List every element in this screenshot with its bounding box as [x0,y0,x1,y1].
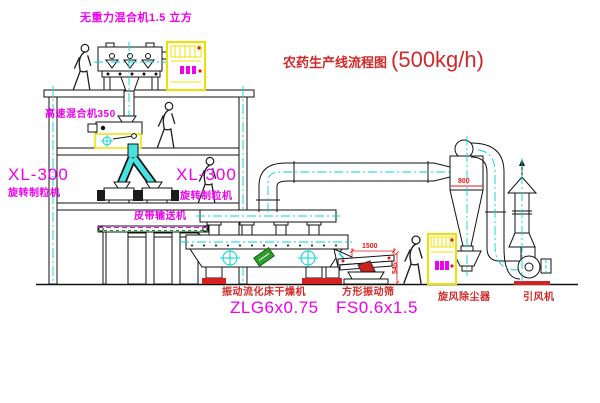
title-text: 农药生产线流程图 [283,52,387,71]
page-title: 农药生产线流程图 (500kg/h) [283,47,484,73]
label-dryer-model: ZLG6x0.75 [230,299,319,316]
dimension-cyclone-inlet: 800 [458,178,470,185]
label-granulator-left-model: XL-300 [8,166,69,183]
label-belt-conveyor: 皮带输送机 [134,212,187,222]
label-dryer-name: 振动流化床干燥机 [222,288,306,298]
label-granulator-left-name: 旋转制粒机 [8,189,61,199]
exhaust-duct [256,161,458,212]
person-figure [158,102,175,147]
label-top-mixer: 无重力混合机1.5 立方 [80,13,192,24]
title-capacity: (500kg/h) [391,47,484,73]
label-cyclone: 旋风除尘器 [438,293,491,303]
gravity-mixer [94,43,173,91]
fluid-bed-dryer [180,210,352,284]
label-fan: 引风机 [523,293,555,303]
flow-diagram-page: 无重力混合机1.5 立方 农药生产线流程图 (500kg/h) 高速混合机350… [0,0,600,403]
dimension-screen-length: 1500 [362,243,378,250]
label-screen-model: FS0.6x1.5 [336,299,418,316]
label-high-speed-mixer: 高速混合机350 [45,110,116,120]
control-cabinet-ground [428,234,456,284]
granulator-left [97,182,141,203]
granulator-right [135,182,179,203]
dimension-screen-height: 545 [392,262,399,274]
label-granulator-right-name: 旋转制粒机 [180,192,233,202]
person-figure [74,44,91,89]
y-chute [121,158,153,184]
control-cabinet-top [167,42,205,90]
vibrating-screen [338,255,394,284]
label-granulator-right-model: XL-300 [176,166,237,183]
person-figure [404,236,422,283]
label-screen-name: 方形振动筛 [342,288,395,298]
